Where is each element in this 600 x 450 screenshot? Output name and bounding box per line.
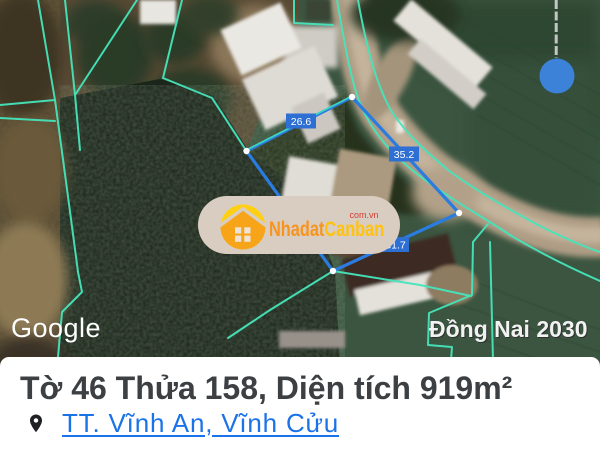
svg-text:26.6: 26.6	[291, 116, 312, 128]
svg-text:Google: Google	[11, 313, 101, 343]
svg-text:Đồng Nai 2030: Đồng Nai 2030	[429, 316, 588, 342]
svg-text:com.vn: com.vn	[350, 210, 379, 220]
svg-text:NhadatCanban: NhadatCanban	[269, 218, 384, 242]
svg-text:35.2: 35.2	[394, 149, 415, 161]
